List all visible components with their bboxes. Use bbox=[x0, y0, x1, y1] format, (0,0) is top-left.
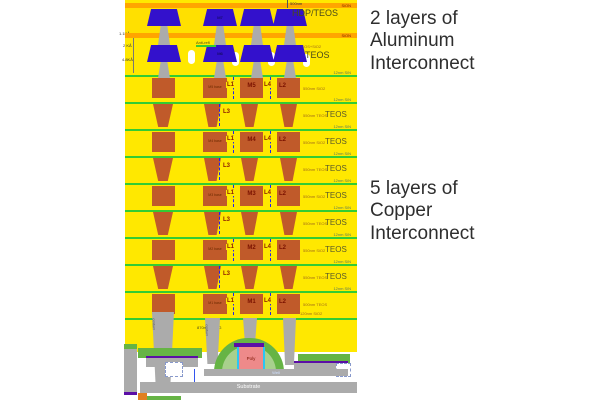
sin-etch-stop-line bbox=[125, 129, 357, 131]
oxide-thickness-label: 550nm SiO2 bbox=[303, 248, 325, 253]
sin-etch-stop-line bbox=[125, 183, 357, 185]
copper-metal-row-m5: 12nm SiN M5 base M5 L2 L1 L4 550nm SiO2 bbox=[125, 75, 357, 102]
copper-metal-row-m3: 12nm SiN M3 base M3 L2 L1 L4 550nm SiO2 … bbox=[125, 183, 357, 210]
l2-label: L2 bbox=[279, 83, 286, 89]
sti-block bbox=[165, 362, 183, 377]
sin-label: 12nm SiN bbox=[332, 178, 352, 183]
teos-label: TEOS bbox=[325, 245, 347, 254]
copper-metal-row-m4: 12nm SiN M4 base M4 L2 L1 L4 550nm SiO2 … bbox=[125, 129, 357, 156]
copper-line: L2 bbox=[277, 294, 300, 314]
metal-label: M1 bbox=[240, 299, 263, 305]
copper-via bbox=[153, 104, 173, 127]
sin-label: 12nm SiN bbox=[332, 286, 352, 291]
metal-label: M4 bbox=[240, 137, 263, 143]
l1-label: L1 bbox=[226, 298, 235, 304]
sio2-label: 120nm SiO2 bbox=[300, 311, 322, 316]
copper-line bbox=[152, 294, 175, 314]
metal-label: M5 bbox=[240, 83, 263, 89]
poly-gate: Poly bbox=[237, 347, 265, 370]
oxide-thickness-label: 550nm SiO2 bbox=[303, 194, 325, 199]
sin-label: 12nm SiN bbox=[332, 151, 352, 156]
copper-via bbox=[153, 266, 173, 289]
interconnect-cross-section-diagram: SiON SiON 500nm M7 HDP/TEOS M6 TEOS+SiO2… bbox=[0, 0, 600, 400]
l3-label: L3 bbox=[222, 109, 231, 115]
metal-label: M2 bbox=[240, 245, 263, 251]
base-label: M2 base bbox=[203, 247, 227, 251]
anti-reflective-line bbox=[196, 45, 216, 47]
base-label: M3 base bbox=[203, 193, 227, 197]
aluminum-annotation: 2 layers of Aluminum Interconnect bbox=[370, 8, 590, 75]
hdp-teos-label: HDP/TEOS bbox=[292, 8, 338, 18]
l4-label: L4 bbox=[263, 136, 272, 142]
sin-label: 12nm SiN bbox=[332, 205, 352, 210]
copper-line: M5 base bbox=[203, 78, 227, 98]
copper-via-row: 12nm SiN L3 550nm TEOS TEOS bbox=[125, 264, 357, 291]
oxide-thickness-label: 550nm TEOS bbox=[303, 275, 327, 280]
metal-label: M3 bbox=[240, 191, 263, 197]
copper-line: L2 bbox=[277, 132, 300, 152]
l3-label: L3 bbox=[222, 217, 231, 223]
oxide-thickness-label: 550nm SiO2 bbox=[303, 140, 325, 145]
copper-line: L2 bbox=[277, 78, 300, 98]
dim-label-2: 2 KÅ bbox=[123, 43, 132, 48]
oxide-thickness-label: 550nm SiO2 bbox=[303, 86, 325, 91]
substrate-tap bbox=[138, 393, 147, 400]
copper-via bbox=[153, 158, 173, 181]
dim-arrow bbox=[194, 369, 195, 382]
copper-via bbox=[241, 212, 258, 235]
silicide-line bbox=[124, 392, 137, 395]
dim-500nm-label: 500nm bbox=[290, 1, 302, 6]
dim-arrow bbox=[233, 185, 234, 207]
copper-line: M1 base bbox=[203, 294, 227, 314]
copper-line: M2 bbox=[240, 240, 263, 260]
l2-label: L2 bbox=[279, 191, 286, 197]
copper-via bbox=[241, 158, 258, 181]
teos-label: TEOS bbox=[325, 272, 347, 281]
copper-line: M1 bbox=[240, 294, 263, 314]
aluminum-m6-line bbox=[147, 45, 181, 62]
substrate-diffusion bbox=[147, 396, 181, 400]
teos-label: TEOS bbox=[325, 137, 347, 146]
passivation-label: SiON bbox=[341, 3, 351, 8]
teos-label: TEOS bbox=[305, 50, 330, 60]
base-label: M5 base bbox=[203, 85, 227, 89]
copper-via-row: 12nm SiN L3 550nm TEOS TEOS bbox=[125, 210, 357, 237]
dummy-via bbox=[188, 50, 195, 64]
copper-via bbox=[280, 212, 297, 235]
copper-line: L2 bbox=[277, 240, 300, 260]
dim-arrow bbox=[219, 266, 220, 288]
copper-line bbox=[152, 186, 175, 206]
copper-line: M4 base bbox=[203, 132, 227, 152]
l3-label: L3 bbox=[222, 163, 231, 169]
dim-arrow bbox=[233, 131, 234, 153]
copper-line: L2 bbox=[277, 186, 300, 206]
l4-label: L4 bbox=[263, 82, 272, 88]
copper-line bbox=[152, 78, 175, 98]
sin-label: 12nm SiN bbox=[332, 124, 352, 129]
sin-etch-stop-line bbox=[125, 264, 357, 266]
substrate-bar: Substrate bbox=[140, 382, 357, 393]
l1-label: L1 bbox=[226, 244, 235, 250]
copper-line bbox=[152, 240, 175, 260]
dim-label-3: 4.8KÅ bbox=[122, 57, 133, 62]
dim-arrow bbox=[219, 104, 220, 126]
sin-label: 12nm SiN bbox=[332, 232, 352, 237]
dim-arrow bbox=[270, 239, 271, 261]
aluminum-m6-line: M6 bbox=[203, 45, 237, 62]
l1-label: L1 bbox=[226, 136, 235, 142]
oxide-thickness-label: 550nm TEOS bbox=[303, 221, 327, 226]
well-bar: Well bbox=[204, 369, 348, 376]
copper-line: M2 base bbox=[203, 240, 227, 260]
l2-label: L2 bbox=[279, 137, 286, 143]
dim-arrow bbox=[233, 239, 234, 261]
copper-metal-row-m2: 12nm SiN M2 base M2 L2 L1 L4 550nm SiO2 … bbox=[125, 237, 357, 264]
copper-via bbox=[241, 104, 258, 127]
l4-label: L4 bbox=[263, 190, 272, 196]
oxide-thickness-label: 550nm TEOS bbox=[303, 167, 327, 172]
l2-label: L2 bbox=[279, 299, 286, 305]
passivation-label: SiON bbox=[341, 33, 351, 38]
dim-arrow bbox=[270, 131, 271, 153]
l4-label: L4 bbox=[263, 298, 272, 304]
copper-via bbox=[280, 266, 297, 289]
sin-etch-stop-line bbox=[125, 291, 357, 293]
dim-arrow bbox=[270, 77, 271, 99]
dim-arrow bbox=[233, 77, 234, 99]
base-label: M4 base bbox=[203, 139, 227, 143]
sin-label: 12nm SiN bbox=[332, 259, 352, 264]
sin-etch-stop-line bbox=[125, 210, 357, 212]
copper-via bbox=[280, 158, 297, 181]
dimension-tick bbox=[287, 0, 288, 8]
l2-label: L2 bbox=[279, 245, 286, 251]
contact bbox=[283, 318, 296, 365]
l1-label: L1 bbox=[226, 190, 235, 196]
copper-line: M4 bbox=[240, 132, 263, 152]
sin-etch-stop-line bbox=[125, 237, 357, 239]
oxide-thickness-label: 500nm TEOS bbox=[303, 302, 327, 307]
aluminum-m7-line: M7 bbox=[203, 9, 237, 26]
copper-via-row: 12nm SiN L3 550nm TEOS TEOS bbox=[125, 156, 357, 183]
teos-label: TEOS bbox=[325, 164, 347, 173]
base-label: M1 base bbox=[203, 301, 227, 305]
aluminum-m7-line bbox=[147, 9, 181, 26]
copper-via bbox=[153, 212, 173, 235]
dim-arrow bbox=[233, 293, 234, 315]
teos-label: TEOS bbox=[325, 191, 347, 200]
sin-label: 12nm SiN bbox=[332, 70, 352, 75]
copper-line bbox=[152, 132, 175, 152]
aluminum-m6-line bbox=[240, 45, 274, 62]
copper-line: M3 bbox=[240, 186, 263, 206]
copper-via bbox=[241, 266, 258, 289]
sin-etch-stop-line bbox=[125, 156, 357, 158]
sin-etch-stop-line bbox=[125, 102, 357, 104]
dim-arrow bbox=[219, 212, 220, 234]
dim-arrow bbox=[219, 158, 220, 180]
teos-label: TEOS bbox=[325, 110, 347, 119]
copper-annotation: 5 layers of Copper Interconnect bbox=[370, 178, 590, 245]
l3-label: L3 bbox=[222, 271, 231, 277]
dim-arrow bbox=[270, 293, 271, 315]
aluminum-m7-line bbox=[240, 9, 274, 26]
oxide-thickness-label: 550nm TEOS bbox=[303, 113, 327, 118]
dim-arrow bbox=[270, 185, 271, 207]
dimension-line bbox=[133, 36, 134, 73]
teos-label: TEOS bbox=[325, 218, 347, 227]
l4-label: L4 bbox=[263, 244, 272, 250]
copper-line: M3 base bbox=[203, 186, 227, 206]
copper-via bbox=[280, 104, 297, 127]
deep-contact-far-left bbox=[124, 349, 137, 394]
l1-label: L1 bbox=[226, 82, 235, 88]
copper-line: M5 bbox=[240, 78, 263, 98]
aluminum-m6-line bbox=[273, 45, 307, 62]
sin-label: 12nm SiN bbox=[332, 97, 352, 102]
copper-via-row: 12nm SiN L3 550nm TEOS TEOS bbox=[125, 102, 357, 129]
